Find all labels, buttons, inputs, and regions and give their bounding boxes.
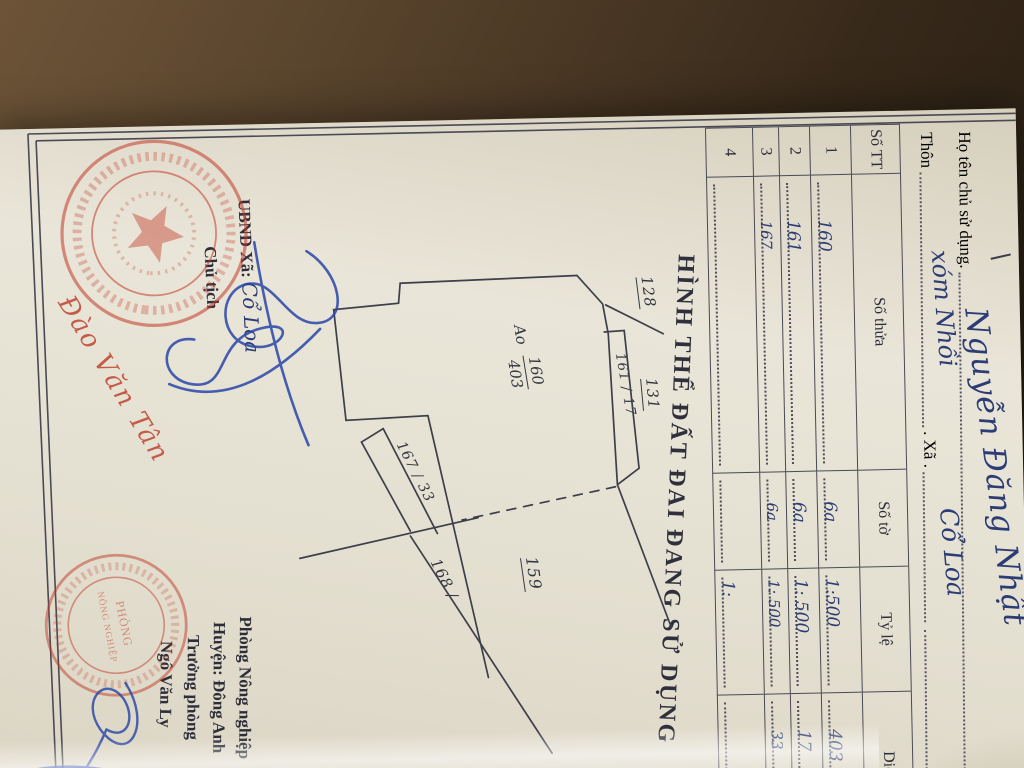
chairman-signature-stroke (164, 241, 340, 449)
document-page: Họ tên chủ sử dụng. Nguyễn Đăng Nhật Thô… (0, 108, 1024, 768)
page-border (28, 113, 1024, 768)
sketch-and-stamps-overlay: PHÒNG NÔNG NGHIỆP (0, 108, 1024, 768)
cadastral-sketch-lines (294, 274, 674, 759)
stray-mark (991, 254, 1011, 258)
photo-background: Họ tên chủ sử dụng. Nguyễn Đăng Nhật Thô… (0, 0, 1024, 768)
